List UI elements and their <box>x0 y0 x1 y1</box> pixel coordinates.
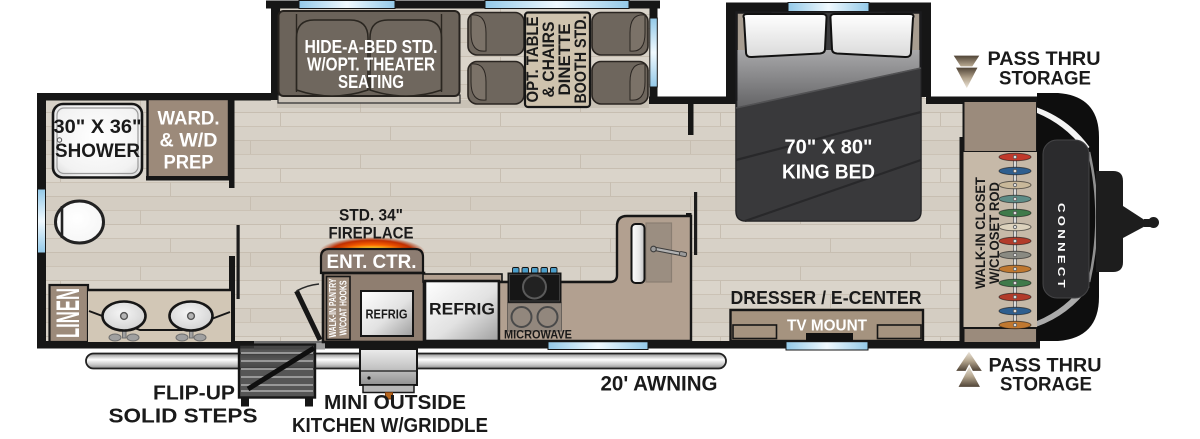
svg-text:PREP: PREP <box>164 152 214 174</box>
svg-text:20' AWNING: 20' AWNING <box>601 372 718 396</box>
svg-text:MICROWAVE: MICROWAVE <box>504 330 572 342</box>
svg-text:STORAGE: STORAGE <box>999 68 1091 90</box>
svg-text:STORAGE: STORAGE <box>1000 374 1092 396</box>
svg-text:MINI OUTSIDE: MINI OUTSIDE <box>324 391 466 414</box>
svg-text:30" X 36": 30" X 36" <box>54 116 142 138</box>
svg-text:DRESSER / E-CENTER: DRESSER / E-CENTER <box>731 287 922 308</box>
svg-text:CONNECT: CONNECT <box>1055 203 1066 291</box>
svg-text:ENT. CTR.: ENT. CTR. <box>327 252 417 273</box>
svg-text:KING BED: KING BED <box>782 162 875 184</box>
svg-text:SEATING: SEATING <box>338 71 404 92</box>
svg-text:SHOWER: SHOWER <box>55 140 140 162</box>
svg-text:SOLID STEPS: SOLID STEPS <box>109 405 258 428</box>
svg-text:WARD.: WARD. <box>158 108 220 130</box>
svg-text:FLIP-UP: FLIP-UP <box>153 382 235 405</box>
svg-text:W/COAT HOOKS: W/COAT HOOKS <box>339 280 350 335</box>
svg-text:REFRIG: REFRIG <box>429 301 495 319</box>
svg-text:70" X 80": 70" X 80" <box>785 137 873 159</box>
svg-text:LINEN: LINEN <box>50 288 86 338</box>
svg-text:WALK-IN CLOSET: WALK-IN CLOSET <box>973 176 988 289</box>
svg-text:TV MOUNT: TV MOUNT <box>787 318 867 335</box>
svg-text:W/CLOSET ROD: W/CLOSET ROD <box>987 182 1002 284</box>
svg-text:REFRIG: REFRIG <box>366 308 408 322</box>
svg-text:FIREPLACE: FIREPLACE <box>329 224 414 243</box>
svg-text:STD. 34": STD. 34" <box>339 206 403 225</box>
svg-text:WALK-IN PANTRY: WALK-IN PANTRY <box>328 278 339 337</box>
svg-text:BOOTH STD.: BOOTH STD. <box>572 16 590 104</box>
svg-text:KITCHEN W/GRIDDLE: KITCHEN W/GRIDDLE <box>292 414 488 437</box>
svg-text:& W/D: & W/D <box>160 130 218 152</box>
